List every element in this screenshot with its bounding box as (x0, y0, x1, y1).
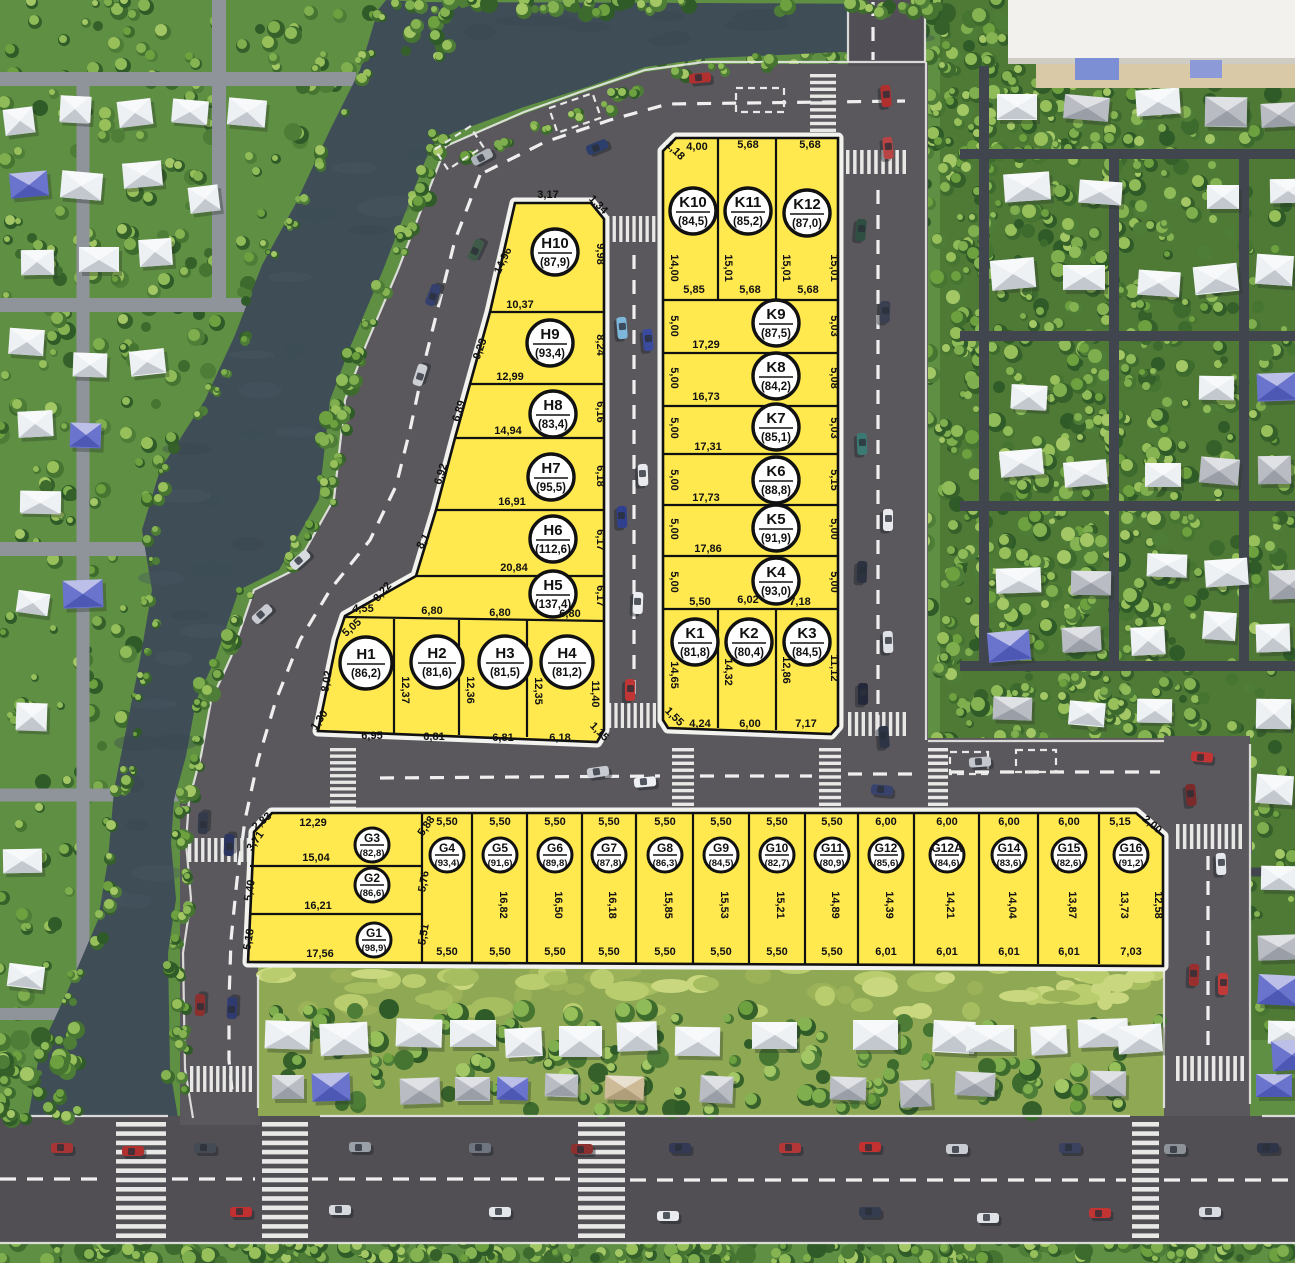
svg-text:(87,9): (87,9) (540, 257, 570, 269)
svg-text:G11: G11 (821, 841, 843, 855)
svg-text:4,24: 4,24 (689, 718, 711, 730)
svg-text:(84,6): (84,6) (935, 858, 960, 869)
svg-text:12,35: 12,35 (532, 677, 544, 705)
svg-text:5,03: 5,03 (828, 315, 840, 336)
svg-text:5,50: 5,50 (766, 816, 787, 828)
svg-text:5,00: 5,00 (668, 571, 680, 592)
svg-text:3,17: 3,17 (537, 189, 558, 201)
svg-text:(83,6): (83,6) (997, 858, 1022, 869)
svg-text:(87,5): (87,5) (761, 328, 791, 340)
svg-text:(95,5): (95,5) (536, 482, 566, 494)
svg-text:6,01: 6,01 (875, 946, 896, 958)
svg-text:12,37: 12,37 (399, 676, 411, 704)
svg-text:12,86: 12,86 (780, 656, 792, 684)
svg-text:(81,8): (81,8) (680, 647, 710, 659)
svg-text:H6: H6 (543, 522, 562, 539)
svg-text:5,00: 5,00 (668, 315, 680, 336)
svg-text:7,17: 7,17 (795, 718, 816, 730)
svg-text:16,82: 16,82 (497, 891, 509, 919)
svg-text:H9: H9 (540, 326, 559, 343)
svg-text:6,18: 6,18 (549, 732, 570, 744)
svg-text:6,00: 6,00 (1058, 816, 1079, 828)
svg-text:16,73: 16,73 (692, 391, 720, 403)
svg-text:(82,7): (82,7) (765, 858, 790, 869)
svg-text:K5: K5 (766, 511, 785, 528)
svg-text:(87,8): (87,8) (597, 858, 622, 869)
svg-text:5,00: 5,00 (668, 469, 680, 490)
svg-text:(85,6): (85,6) (874, 858, 899, 869)
svg-text:16,18: 16,18 (606, 891, 618, 919)
svg-text:14,39: 14,39 (883, 891, 895, 919)
svg-text:6,18: 6,18 (594, 465, 606, 486)
svg-text:16,50: 16,50 (552, 891, 564, 919)
svg-text:5,50: 5,50 (654, 946, 675, 958)
svg-text:13,73: 13,73 (1118, 891, 1130, 919)
svg-text:(82,6): (82,6) (1057, 858, 1082, 869)
svg-text:5,50: 5,50 (689, 596, 710, 608)
svg-text:(82,8): (82,8) (360, 848, 385, 859)
svg-text:6,01: 6,01 (998, 946, 1019, 958)
svg-text:(83,4): (83,4) (538, 419, 568, 431)
svg-text:K4: K4 (766, 564, 786, 581)
svg-text:5,50: 5,50 (489, 946, 510, 958)
svg-text:(91,2): (91,2) (1119, 858, 1144, 869)
svg-text:15,01: 15,01 (722, 254, 734, 282)
svg-text:(91,6): (91,6) (488, 858, 513, 869)
svg-text:6,16: 6,16 (594, 401, 606, 422)
svg-text:6,80: 6,80 (559, 608, 580, 620)
svg-text:(88,8): (88,8) (761, 485, 791, 497)
svg-text:H8: H8 (543, 397, 562, 414)
svg-text:6,02: 6,02 (737, 594, 758, 606)
svg-text:14,65: 14,65 (668, 661, 680, 689)
svg-text:5,68: 5,68 (739, 284, 760, 296)
svg-text:K6: K6 (766, 463, 785, 480)
svg-text:(81,2): (81,2) (552, 667, 582, 679)
svg-text:4,00: 4,00 (686, 141, 707, 153)
svg-text:6,17: 6,17 (594, 529, 606, 550)
svg-text:K8: K8 (766, 359, 785, 376)
svg-text:5,00: 5,00 (668, 417, 680, 438)
svg-text:15,21: 15,21 (774, 891, 786, 919)
svg-text:20,84: 20,84 (500, 562, 528, 574)
svg-text:15,85: 15,85 (662, 891, 674, 919)
svg-text:K10: K10 (679, 194, 707, 211)
svg-text:5,50: 5,50 (544, 816, 565, 828)
svg-text:(86,6): (86,6) (360, 888, 385, 899)
svg-text:11,12: 11,12 (828, 655, 840, 682)
svg-text:(84,2): (84,2) (761, 381, 791, 393)
svg-text:5,50: 5,50 (544, 946, 565, 958)
svg-text:5,08: 5,08 (828, 367, 840, 388)
svg-text:K9: K9 (766, 306, 785, 323)
svg-text:(93,4): (93,4) (435, 858, 460, 869)
svg-text:G16: G16 (1120, 841, 1143, 855)
svg-text:G3: G3 (364, 831, 380, 845)
svg-text:G9: G9 (713, 841, 729, 855)
svg-text:H3: H3 (495, 645, 514, 662)
svg-text:14,21: 14,21 (944, 891, 956, 919)
svg-text:17,29: 17,29 (692, 339, 720, 351)
svg-text:6,01: 6,01 (1058, 946, 1079, 958)
svg-text:5,50: 5,50 (710, 816, 731, 828)
svg-text:5,00: 5,00 (668, 367, 680, 388)
svg-text:5,50: 5,50 (436, 946, 457, 958)
svg-text:6,80: 6,80 (489, 607, 510, 619)
svg-text:K3: K3 (797, 625, 816, 642)
svg-text:8,24: 8,24 (594, 334, 606, 356)
svg-text:(80,9): (80,9) (820, 858, 845, 869)
svg-text:5,15: 5,15 (1109, 816, 1130, 828)
svg-text:5,50: 5,50 (489, 816, 510, 828)
svg-text:5,68: 5,68 (737, 139, 758, 151)
svg-text:6,01: 6,01 (936, 946, 957, 958)
svg-text:14,32: 14,32 (722, 658, 734, 686)
svg-text:4,55: 4,55 (352, 603, 373, 615)
svg-text:11,40: 11,40 (589, 681, 601, 708)
svg-text:H7: H7 (541, 460, 560, 477)
svg-text:14,04: 14,04 (1006, 891, 1018, 919)
svg-text:(86,2): (86,2) (351, 668, 381, 680)
svg-text:6,80: 6,80 (421, 605, 442, 617)
svg-text:5,50: 5,50 (766, 946, 787, 958)
svg-text:5,15: 5,15 (828, 469, 840, 490)
svg-text:(91,9): (91,9) (761, 533, 791, 545)
svg-text:(87,0): (87,0) (792, 218, 822, 230)
svg-text:12,36: 12,36 (464, 676, 476, 704)
svg-text:5,50: 5,50 (436, 816, 457, 828)
svg-text:K2: K2 (739, 625, 758, 642)
svg-text:(85,1): (85,1) (761, 432, 791, 444)
svg-text:5,50: 5,50 (598, 946, 619, 958)
svg-text:5,50: 5,50 (821, 816, 842, 828)
svg-text:13,87: 13,87 (1066, 891, 1078, 919)
svg-text:(80,4): (80,4) (734, 647, 764, 659)
svg-text:G15: G15 (1058, 841, 1081, 855)
svg-text:15,04: 15,04 (302, 852, 330, 864)
svg-text:(84,5): (84,5) (792, 647, 822, 659)
svg-text:6,00: 6,00 (739, 718, 760, 730)
svg-text:G7: G7 (601, 841, 617, 855)
svg-text:14,94: 14,94 (494, 425, 522, 437)
svg-text:G10: G10 (766, 841, 789, 855)
svg-text:K1: K1 (685, 625, 704, 642)
svg-text:5,50: 5,50 (598, 816, 619, 828)
svg-text:H1: H1 (356, 646, 375, 663)
svg-text:G6: G6 (547, 841, 563, 855)
svg-text:H4: H4 (557, 645, 577, 662)
svg-text:G14: G14 (998, 841, 1021, 855)
svg-text:5,68: 5,68 (797, 284, 818, 296)
svg-text:5,50: 5,50 (821, 946, 842, 958)
svg-text:(86,3): (86,3) (653, 858, 678, 869)
svg-text:16,91: 16,91 (498, 496, 526, 508)
svg-text:G1: G1 (366, 926, 382, 940)
svg-text:H2: H2 (427, 645, 446, 662)
svg-text:(93,4): (93,4) (535, 348, 565, 360)
svg-text:5,00: 5,00 (828, 518, 840, 539)
svg-text:(84,5): (84,5) (678, 216, 708, 228)
svg-text:G12: G12 (875, 841, 898, 855)
svg-text:H5: H5 (543, 577, 562, 594)
svg-text:12,29: 12,29 (299, 817, 327, 829)
svg-text:15,01: 15,01 (780, 254, 792, 282)
svg-text:7,03: 7,03 (1120, 946, 1141, 958)
svg-text:17,56: 17,56 (306, 948, 334, 960)
svg-text:5,00: 5,00 (828, 571, 840, 592)
svg-text:14,00: 14,00 (668, 254, 680, 282)
svg-text:G4: G4 (439, 841, 455, 855)
svg-text:5,50: 5,50 (654, 816, 675, 828)
svg-text:G2: G2 (364, 871, 380, 885)
svg-text:G5: G5 (492, 841, 508, 855)
svg-text:6,81: 6,81 (492, 732, 513, 744)
svg-text:9,98: 9,98 (594, 243, 606, 264)
svg-text:(98,9): (98,9) (362, 943, 387, 954)
svg-text:H10: H10 (541, 235, 569, 252)
svg-text:5,68: 5,68 (799, 139, 820, 151)
svg-text:5,00: 5,00 (668, 518, 680, 539)
svg-text:K12: K12 (793, 196, 821, 213)
svg-text:10,37: 10,37 (506, 299, 534, 311)
svg-text:15,01: 15,01 (828, 254, 840, 282)
svg-text:(81,5): (81,5) (490, 667, 520, 679)
svg-text:(81,6): (81,6) (422, 667, 452, 679)
svg-text:K7: K7 (766, 410, 785, 427)
svg-text:5,50: 5,50 (710, 946, 731, 958)
svg-text:K11: K11 (735, 194, 762, 211)
svg-text:5,03: 5,03 (828, 417, 840, 438)
svg-text:(112,6): (112,6) (535, 544, 571, 556)
svg-text:G8: G8 (657, 841, 673, 855)
svg-text:(84,5): (84,5) (709, 858, 734, 869)
svg-text:5,85: 5,85 (683, 284, 704, 296)
svg-text:17,86: 17,86 (694, 543, 722, 555)
svg-text:(85,2): (85,2) (733, 216, 763, 228)
svg-text:12,58: 12,58 (1152, 891, 1164, 919)
svg-text:6,00: 6,00 (998, 816, 1019, 828)
svg-text:12,99: 12,99 (496, 371, 524, 383)
svg-text:(93,0): (93,0) (761, 586, 791, 598)
svg-text:14,89: 14,89 (829, 891, 841, 919)
svg-text:7,18: 7,18 (789, 596, 810, 608)
svg-text:6,81: 6,81 (423, 731, 444, 743)
svg-text:G12A: G12A (931, 841, 963, 855)
svg-text:15,53: 15,53 (718, 891, 730, 919)
svg-text:17,31: 17,31 (694, 441, 722, 453)
svg-text:17,73: 17,73 (692, 492, 720, 504)
svg-text:6,17: 6,17 (594, 585, 606, 606)
svg-text:(89,8): (89,8) (543, 858, 568, 869)
svg-text:6,95: 6,95 (361, 730, 382, 742)
svg-text:6,00: 6,00 (936, 816, 957, 828)
svg-text:6,00: 6,00 (875, 816, 896, 828)
svg-text:16,21: 16,21 (304, 900, 332, 912)
